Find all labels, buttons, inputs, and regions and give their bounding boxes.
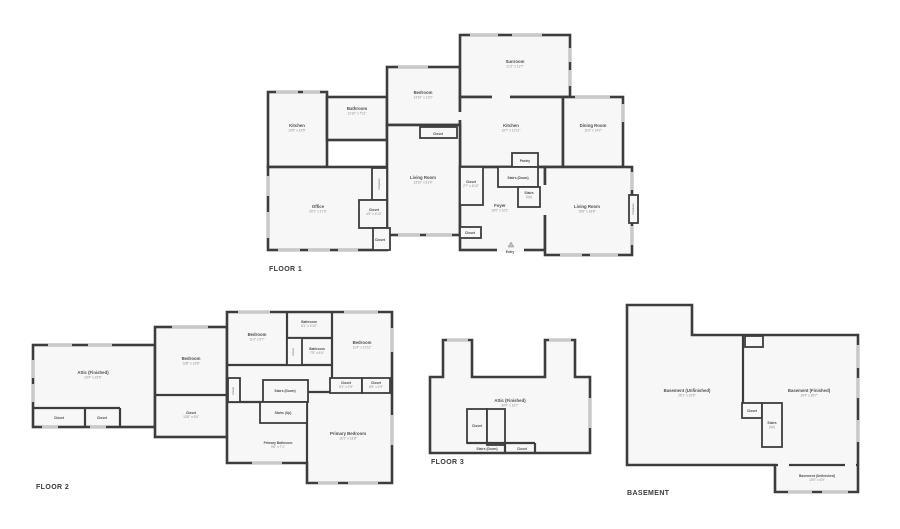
room-label: Stairs (Up) <box>275 411 292 415</box>
room-label: Closet <box>517 447 528 451</box>
room-label: Entry <box>506 250 515 254</box>
room-label: Pantry <box>520 159 530 163</box>
room-label: Kitchen <box>289 123 305 128</box>
room-dims: 13'8" x 13'8" <box>182 362 199 366</box>
room-label: Basement (Unfinished) <box>664 388 711 393</box>
room-label: Bathroom <box>347 106 367 111</box>
basement-plan: Basement (Unfinished)26'1" x 22'5"Baseme… <box>627 305 858 497</box>
room-dims: 15'9" x 6'9" <box>809 478 825 482</box>
room-label: Closet <box>433 132 444 136</box>
room-label: Bedroom <box>414 90 433 95</box>
floor-3-walls <box>430 340 590 453</box>
room-dims: 10'0" x 10'1" <box>491 209 508 213</box>
room-dims: 5'1" x 2'9" <box>339 385 353 389</box>
room-dims: 16'1" x 13'8" <box>339 437 356 441</box>
room-dims: (Up) <box>769 425 775 429</box>
room-label: Closet <box>375 238 386 242</box>
room-label: Closet <box>54 416 65 420</box>
room-dims: 21'2" x 11'7" <box>506 65 523 69</box>
room-label: Closet <box>291 348 295 356</box>
floorplan-sheet: Kitchen10'9" x 14'5"Bathroom11'10" x 7'1… <box>0 0 900 529</box>
room-dims: 15'7" x 12'11" <box>501 129 520 133</box>
room-label: Primary Bedroom <box>330 431 366 436</box>
room-label: Dining Room <box>580 123 607 128</box>
basement-title: BASEMENT <box>627 490 670 497</box>
room-dims: 11'10" x 7'11" <box>348 112 367 116</box>
room-dims: 8'1" x 4'10" <box>301 324 317 328</box>
room-dims: 19'4" x 26'7" <box>800 394 817 398</box>
room-label: Attic (Finished) <box>494 398 526 403</box>
room-dims: 20'1" x 17'3" <box>309 210 326 214</box>
stairs-landing-icon <box>745 336 763 347</box>
room-dims: 11'4" x 9'7" <box>249 338 264 342</box>
floorplan-canvas: Kitchen10'9" x 14'5"Bathroom11'10" x 7'1… <box>0 0 900 529</box>
floor-2-plan: Attic (Finished)23'4" x 15'6"ClosetClose… <box>33 312 392 491</box>
room-label: Attic (Finished) <box>77 370 109 375</box>
room-dims: 7'5" x 6'4" <box>310 351 324 355</box>
room-label: Bedroom <box>248 332 267 337</box>
room-dims: 11'6" x 14'2" <box>584 129 601 133</box>
room-label: Closet <box>747 409 758 413</box>
room-label: Foyer <box>494 203 506 208</box>
room-label: Stairs (Down) <box>476 447 497 451</box>
floor-3-plan: Attic (Finished)30'0" x 13'7"ClosetStair… <box>430 340 590 466</box>
room-label: Living Room <box>574 204 600 209</box>
room-dims: 11'4" x 12'11" <box>353 346 372 350</box>
room-label: Basement (Finished) <box>788 388 831 393</box>
room-dims: 10'9" x 14'5" <box>288 129 305 133</box>
floor-3-title: FLOOR 3 <box>431 459 464 466</box>
room-dims: 26'1" x 22'5" <box>678 394 695 398</box>
room-dims: 13'8" x 6'0" <box>183 415 199 419</box>
floor-2-walls <box>33 312 392 483</box>
room-label: Fireplace <box>377 178 381 190</box>
room-label: Stairs (Down) <box>274 389 295 393</box>
room-label: Fireplace <box>631 203 635 215</box>
room-dims: 5'5" x 2'9" <box>369 385 383 389</box>
room-label: Closet <box>472 424 483 428</box>
floor-1-walls <box>268 35 632 255</box>
room-dims: 23'4" x 15'6" <box>84 376 101 380</box>
room-dims: 30'0" x 13'7" <box>501 404 518 408</box>
room-dims: 4'5" x 4'10" <box>366 212 382 216</box>
room-label: Office <box>312 204 325 209</box>
room-dims: 13'10" x 21'4" <box>413 181 432 185</box>
room-label: Living Room <box>410 175 436 180</box>
room-label: Closet <box>97 416 108 420</box>
room-dims: (Up) <box>526 195 532 199</box>
room-label: Stairs (Down) <box>507 176 528 180</box>
floor-1-title: FLOOR 1 <box>269 266 302 273</box>
room-dims: 16'6" x 18'8" <box>578 210 595 214</box>
room-label: Closet <box>465 231 476 235</box>
room-label: Bedroom <box>353 340 372 345</box>
floor-2-title: FLOOR 2 <box>36 484 69 491</box>
room-label: Bedroom <box>182 356 201 361</box>
room-label: Closet <box>231 387 235 395</box>
room-dims: 9'6" x 7'1" <box>271 445 285 449</box>
room-label: Kitchen <box>503 123 519 128</box>
room-dims: 2'7" x 6'10" <box>463 184 479 188</box>
room-label: Sunroom <box>506 59 525 64</box>
room-dims: 13'10" x 11'0" <box>413 96 432 100</box>
floor-1-plan: Kitchen10'9" x 14'5"Bathroom11'10" x 7'1… <box>268 35 638 273</box>
stairs-down-icon <box>487 409 505 445</box>
